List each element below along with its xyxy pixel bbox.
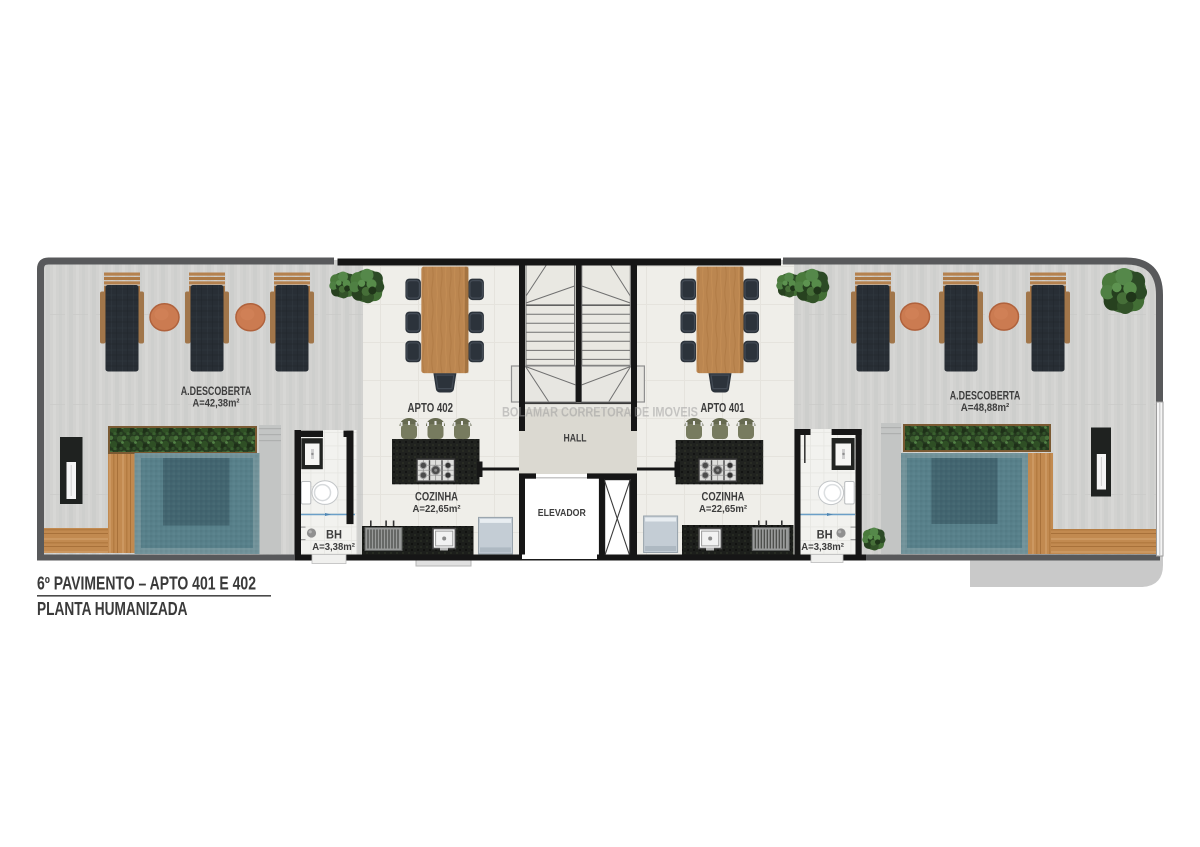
svg-text:COZINHA: COZINHA — [702, 492, 745, 504]
svg-text:HALL: HALL — [564, 433, 587, 445]
svg-text:A=22,65m²: A=22,65m² — [413, 503, 461, 515]
svg-text:COZINHA: COZINHA — [415, 492, 458, 504]
svg-text:A.DESCOBERTA: A.DESCOBERTA — [950, 389, 1021, 403]
svg-text:A=3,38m²: A=3,38m² — [312, 541, 355, 553]
svg-text:BOLAMAR CORRETORA DE IMOVEIS: BOLAMAR CORRETORA DE IMOVEIS — [502, 404, 698, 420]
svg-text:BH: BH — [326, 530, 342, 542]
svg-text:A=48,88m²: A=48,88m² — [961, 402, 1010, 414]
svg-text:A=3,38m²: A=3,38m² — [801, 541, 844, 553]
svg-text:A.DESCOBERTA: A.DESCOBERTA — [181, 384, 252, 398]
svg-text:BH: BH — [817, 530, 833, 542]
svg-text:ELEVADOR: ELEVADOR — [538, 508, 587, 519]
svg-text:APTO 401: APTO 401 — [701, 401, 745, 415]
svg-text:6º PAVIMENTO – APTO 401 E 402: 6º PAVIMENTO – APTO 401 E 402 — [37, 574, 256, 594]
svg-text:APTO 402: APTO 402 — [408, 401, 454, 415]
svg-text:A=22,65m²: A=22,65m² — [699, 503, 747, 515]
svg-text:A=42,38m²: A=42,38m² — [193, 398, 240, 410]
svg-text:PLANTA HUMANIZADA: PLANTA HUMANIZADA — [37, 599, 188, 619]
